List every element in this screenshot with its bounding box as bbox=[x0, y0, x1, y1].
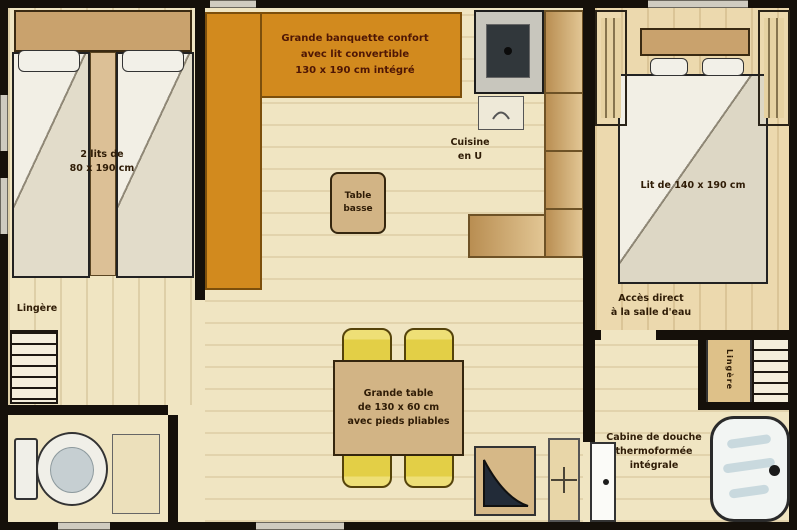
door-handle-icon bbox=[603, 479, 609, 485]
coffee-table-label: Table basse bbox=[330, 172, 386, 234]
counter-divider bbox=[546, 208, 582, 210]
dining-chair-1 bbox=[342, 328, 392, 364]
twin-beds-label: 2 lits de 80 x 190 cm bbox=[20, 140, 184, 184]
banquette-label: Grande banquette confort avec lit conver… bbox=[252, 18, 458, 92]
double-bed-label: Lit de 140 x 190 cm bbox=[618, 176, 768, 196]
linen-shelves-right bbox=[752, 336, 790, 404]
wall bbox=[698, 332, 706, 408]
corner-washbasin bbox=[474, 446, 536, 516]
entry-door-threshold bbox=[256, 522, 344, 530]
pillow bbox=[18, 50, 80, 72]
dining-chair-4 bbox=[404, 452, 454, 488]
window bbox=[58, 522, 110, 530]
kitchen-counter-bottom bbox=[468, 214, 546, 258]
washbasin-icon bbox=[476, 448, 534, 514]
pillow bbox=[122, 50, 184, 72]
pillow bbox=[702, 58, 744, 76]
wall bbox=[656, 330, 797, 340]
shower-ridge bbox=[729, 484, 770, 498]
wardrobe-left bbox=[595, 10, 627, 126]
window bbox=[0, 178, 8, 234]
kitchen-counter-right bbox=[544, 10, 584, 258]
folding-door-panel bbox=[548, 438, 580, 522]
linen-cabinet-right: Lingère bbox=[706, 336, 752, 404]
toilet bbox=[36, 432, 108, 506]
double-headboard bbox=[640, 28, 750, 56]
kitchen-label: Cuisine en U bbox=[432, 130, 508, 170]
dining-chair-3 bbox=[342, 452, 392, 488]
wall bbox=[583, 340, 595, 442]
kitchen-stove bbox=[474, 10, 544, 94]
window bbox=[648, 0, 748, 8]
linen-right-label: Lingère bbox=[723, 349, 735, 390]
window bbox=[0, 95, 8, 151]
linen-shelves-left bbox=[10, 330, 58, 404]
pillow bbox=[650, 58, 688, 76]
burner-icon bbox=[504, 47, 512, 55]
floor-plan: 2 lits de 80 x 190 cm Lingère Grande ban… bbox=[0, 0, 797, 530]
kitchen-sink bbox=[478, 96, 524, 130]
wall bbox=[698, 402, 792, 410]
shower-ridge bbox=[727, 434, 772, 449]
shower-ridge bbox=[723, 457, 776, 473]
wall bbox=[168, 415, 178, 522]
wall bbox=[583, 8, 595, 340]
wall bbox=[595, 330, 601, 340]
dining-table-label: Grande table de 130 x 60 cm avec pieds p… bbox=[333, 360, 464, 456]
linen-left-label: Lingère bbox=[8, 298, 66, 320]
wall bbox=[8, 405, 168, 415]
stove-top bbox=[486, 24, 530, 78]
faucet-icon bbox=[490, 105, 512, 121]
wc-door-panel bbox=[112, 434, 160, 514]
wardrobe-right bbox=[758, 10, 790, 126]
toilet-tank bbox=[14, 438, 38, 500]
wall bbox=[195, 8, 205, 300]
bathroom-access-label: Accès direct à la salle d'eau bbox=[598, 286, 704, 326]
toilet-bowl-water bbox=[50, 447, 94, 494]
shower-drain-icon bbox=[769, 465, 780, 476]
bathroom-door bbox=[590, 442, 616, 522]
dining-chair-2 bbox=[404, 328, 454, 364]
counter-divider bbox=[546, 150, 582, 152]
window bbox=[210, 0, 256, 8]
counter-divider bbox=[546, 92, 582, 94]
twin-headboard bbox=[14, 10, 192, 52]
door-cross-icon bbox=[551, 467, 577, 493]
shower-cabin bbox=[710, 416, 790, 522]
